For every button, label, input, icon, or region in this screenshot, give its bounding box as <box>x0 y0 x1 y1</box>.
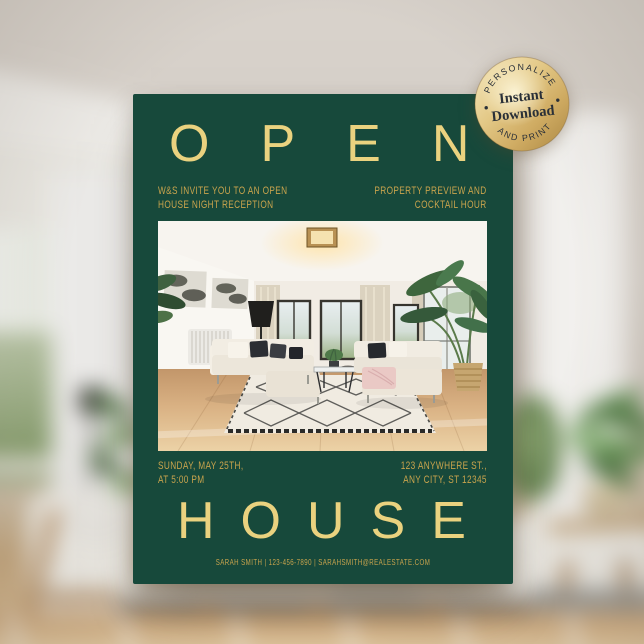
living-room-photo <box>158 221 487 451</box>
address-text: 123 ANYWHERE ST., ANY CITY, ST 12345 <box>401 460 487 488</box>
contact-line: SARAH SMITH | 123-456-7890 | SARAHSMITH@… <box>186 557 460 567</box>
flyer-title-house: HOUSE <box>133 495 492 547</box>
address-line-1: 123 ANYWHERE ST., <box>401 460 487 474</box>
event-line-2: COCKTAIL HOUR <box>375 199 487 213</box>
flyer-title-open: OPEN <box>133 118 520 170</box>
date-line-2: AT 5:00 PM <box>158 474 244 488</box>
bg-armchair-pillow <box>58 486 134 546</box>
open-house-flyer: OPEN W&S INVITE YOU TO AN OPEN HOUSE NIG… <box>133 94 513 584</box>
address-line-2: ANY CITY, ST 12345 <box>401 474 487 488</box>
photo-room <box>158 221 487 451</box>
product-mockup: OPEN W&S INVITE YOU TO AN OPEN HOUSE NIG… <box>0 0 644 644</box>
instant-download-badge: PERSONALIZE Instant Download AND PRINT <box>474 56 570 152</box>
event-line-1: PROPERTY PREVIEW AND <box>375 185 487 199</box>
invite-line-1: W&S INVITE YOU TO AN OPEN <box>158 185 287 199</box>
bg-wood-floor <box>0 612 644 644</box>
invite-text: W&S INVITE YOU TO AN OPEN HOUSE NIGHT RE… <box>158 185 287 213</box>
date-text: SUNDAY, MAY 25TH, AT 5:00 PM <box>158 460 244 488</box>
property-photo <box>158 221 487 451</box>
invite-line-2: HOUSE NIGHT RECEPTION <box>158 199 287 213</box>
ceiling-light <box>307 228 337 247</box>
date-line-1: SUNDAY, MAY 25TH, <box>158 460 244 474</box>
event-text: PROPERTY PREVIEW AND COCKTAIL HOUR <box>375 185 487 213</box>
badge-svg: PERSONALIZE Instant Download AND PRINT <box>474 56 570 152</box>
bg-plant-pot <box>584 484 626 518</box>
sofa-right <box>354 341 442 403</box>
